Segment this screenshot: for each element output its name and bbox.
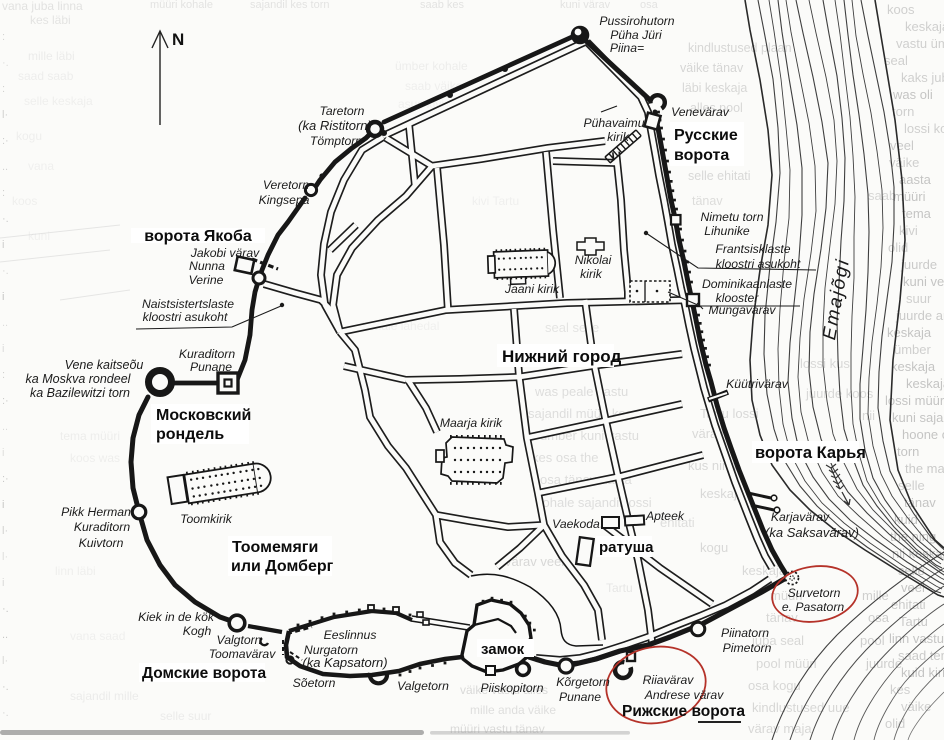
svg-text:veel: veel bbox=[890, 138, 914, 153]
svg-text:Pussirohutorn: Pussirohutorn bbox=[599, 14, 674, 28]
svg-text:рондель: рондель bbox=[156, 426, 224, 443]
svg-text:ka Bazilewitzi torn: ka Bazilewitzi torn bbox=[30, 386, 130, 400]
svg-text:kloostri asukoht: kloostri asukoht bbox=[143, 310, 228, 324]
svg-text:Tartu: Tartu bbox=[899, 614, 928, 629]
svg-text:или Домберг: или Домберг bbox=[231, 558, 334, 575]
svg-text:·.: ·. bbox=[2, 681, 9, 693]
svg-text:l·: l· bbox=[2, 109, 8, 121]
svg-text:Kuraditorn: Kuraditorn bbox=[179, 347, 235, 361]
svg-text:juurde: juurde bbox=[900, 257, 937, 272]
svg-text:ратуша: ратуша bbox=[599, 539, 654, 556]
svg-text::: : bbox=[2, 31, 5, 43]
svg-text:i: i bbox=[2, 291, 4, 303]
svg-text:Lihunike: Lihunike bbox=[704, 224, 750, 238]
svg-text:Sõetorn: Sõetorn bbox=[293, 676, 336, 690]
svg-text:Рижские ворота: Рижские ворота bbox=[622, 703, 745, 720]
svg-text:l·: l· bbox=[2, 551, 8, 563]
svg-text:·.: ·. bbox=[2, 213, 9, 225]
svg-text:kes läbi: kes läbi bbox=[30, 13, 71, 27]
svg-text:Nimetu torn: Nimetu torn bbox=[701, 210, 764, 224]
svg-text:kloostri asukoht: kloostri asukoht bbox=[716, 257, 801, 271]
svg-text::·: :· bbox=[2, 473, 9, 485]
svg-text:värav maja: värav maja bbox=[748, 721, 812, 736]
svg-text:N: N bbox=[172, 30, 184, 49]
svg-text:Taretorn: Taretorn bbox=[320, 104, 365, 118]
svg-text:tänav: tänav bbox=[692, 194, 723, 208]
svg-text:Naistsistertslaste: Naistsistertslaste bbox=[142, 297, 234, 311]
svg-text:Нижний город: Нижний город bbox=[502, 347, 621, 366]
svg-text::·: :· bbox=[2, 135, 9, 147]
svg-text:Kuraditorn: Kuraditorn bbox=[74, 520, 130, 534]
svg-text:..: .. bbox=[2, 317, 8, 329]
svg-text:keskaja: keskaja bbox=[887, 325, 932, 340]
svg-text:sajandil kes torn: sajandil kes torn bbox=[250, 0, 330, 11]
svg-text:kuni värav: kuni värav bbox=[560, 0, 611, 11]
svg-text:selle ehitati: selle ehitati bbox=[688, 169, 751, 183]
svg-text:torn: torn bbox=[892, 104, 914, 119]
svg-text:was peale vastu: was peale vastu bbox=[534, 384, 628, 399]
svg-text:vana juba linna: vana juba linna bbox=[2, 0, 83, 13]
svg-text:(ka Kapsatorn): (ka Kapsatorn) bbox=[302, 655, 387, 670]
svg-text:suur: suur bbox=[906, 291, 932, 306]
svg-text:·.: ·. bbox=[2, 265, 9, 277]
svg-text:kuni sajandil: kuni sajandil bbox=[892, 410, 944, 425]
svg-text:linn läbi: linn läbi bbox=[55, 564, 96, 578]
svg-text:väike: väike bbox=[901, 699, 931, 714]
svg-text:Jakobi värav: Jakobi värav bbox=[190, 246, 260, 260]
svg-text:Nunna: Nunna bbox=[189, 259, 225, 273]
svg-text:koos: koos bbox=[12, 194, 37, 208]
svg-text:e. Pasatorn: e. Pasatorn bbox=[782, 600, 845, 614]
svg-text:klooster: klooster bbox=[716, 291, 760, 305]
svg-text:vastu ümber: vastu ümber bbox=[896, 36, 944, 51]
svg-text::: : bbox=[2, 369, 5, 381]
svg-text:Frantsisklaste: Frantsisklaste bbox=[715, 242, 790, 256]
svg-text:müüri: müüri bbox=[893, 189, 926, 204]
svg-text:lossi müüri: lossi müüri bbox=[885, 393, 944, 408]
svg-text:ворота Якоба: ворота Якоба bbox=[144, 228, 252, 245]
svg-text:juurde and: juurde and bbox=[895, 308, 944, 323]
svg-text:Dominikaanlaste: Dominikaanlaste bbox=[702, 277, 792, 291]
svg-text:(ka Saksavärav): (ka Saksavärav) bbox=[765, 525, 859, 540]
svg-text:Русские: Русские bbox=[674, 127, 738, 144]
svg-text:saad tema: saad tema bbox=[898, 648, 944, 663]
svg-text:Maarja kirik: Maarja kirik bbox=[440, 416, 503, 430]
svg-text:lossi kogu: lossi kogu bbox=[904, 121, 944, 136]
svg-text:sajandil mille: sajandil mille bbox=[70, 689, 139, 703]
svg-text:saab kes: saab kes bbox=[420, 0, 465, 11]
svg-text:kogu: kogu bbox=[16, 129, 42, 143]
svg-text:Punane: Punane bbox=[559, 690, 601, 704]
svg-text:keskaja: keskaja bbox=[906, 376, 944, 391]
svg-text:i: i bbox=[2, 343, 4, 355]
svg-text:Tömptorn: Tömptorn bbox=[310, 134, 362, 148]
svg-text:Andrese värav: Andrese värav bbox=[644, 688, 724, 702]
svg-text:..: .. bbox=[2, 161, 8, 173]
svg-text:(ka Ristitorn): (ka Ristitorn) bbox=[298, 118, 372, 133]
svg-text:Veretorn: Veretorn bbox=[263, 178, 310, 192]
svg-text:Riiavärav: Riiavärav bbox=[643, 673, 695, 687]
svg-text:mille anda väike: mille anda väike bbox=[470, 703, 556, 717]
svg-text:Домские ворота: Домские ворота bbox=[142, 665, 267, 682]
svg-text:Tartu: Tartu bbox=[606, 581, 633, 595]
svg-text:kirik: kirik bbox=[580, 267, 603, 281]
svg-text:Venevärav: Venevärav bbox=[671, 105, 730, 119]
svg-text:kuni: kuni bbox=[28, 229, 50, 243]
svg-text:Kogh: Kogh bbox=[183, 624, 212, 638]
svg-text:Pühavaimu: Pühavaimu bbox=[584, 116, 645, 130]
svg-text:i: i bbox=[2, 447, 4, 459]
svg-text:ümber kohale: ümber kohale bbox=[395, 59, 468, 73]
svg-text:kogu: kogu bbox=[700, 540, 728, 555]
svg-text:l·: l· bbox=[2, 655, 8, 667]
svg-text:the maja: the maja bbox=[905, 461, 944, 476]
svg-text:seal: seal bbox=[884, 53, 908, 68]
svg-text:selle suur: selle suur bbox=[160, 709, 211, 723]
svg-text:väike: väike bbox=[889, 155, 919, 170]
svg-text:koos was: koos was bbox=[70, 451, 120, 465]
svg-text:i: i bbox=[2, 499, 4, 511]
svg-text:kirik: kirik bbox=[607, 130, 630, 144]
svg-text:Valgtorn: Valgtorn bbox=[217, 633, 262, 647]
svg-text:saad saab: saad saab bbox=[18, 69, 74, 83]
svg-text:kuni veel: kuni veel bbox=[903, 274, 944, 289]
svg-text:kes osa the: kes osa the bbox=[532, 450, 599, 465]
svg-text:Московский: Московский bbox=[156, 407, 251, 424]
svg-text:Piina=: Piina= bbox=[610, 41, 644, 55]
svg-text:i: i bbox=[2, 239, 4, 251]
svg-text:Toomavärav: Toomavärav bbox=[209, 647, 277, 661]
svg-text:torn: torn bbox=[897, 444, 919, 459]
svg-text:keskaja linn: keskaja linn bbox=[905, 19, 944, 34]
svg-text:..: .. bbox=[2, 629, 8, 641]
svg-text:osa kogu: osa kogu bbox=[748, 678, 801, 693]
svg-text:mille läbi: mille läbi bbox=[28, 49, 75, 63]
svg-text:Valgetorn: Valgetorn bbox=[397, 679, 449, 693]
svg-text:Kiek in de kök: Kiek in de kök bbox=[138, 610, 215, 624]
svg-text:Survetorn: Survetorn bbox=[788, 586, 841, 600]
svg-text:lossi kus: lossi kus bbox=[800, 356, 850, 371]
svg-text:tema müüri: tema müüri bbox=[60, 429, 120, 443]
svg-text:pool müüri: pool müüri bbox=[756, 656, 817, 671]
svg-text::·: :· bbox=[2, 395, 9, 407]
svg-text:ehitati: ehitati bbox=[891, 597, 926, 612]
svg-text:Eeslinnus: Eeslinnus bbox=[324, 628, 377, 642]
svg-text:Mungavärav: Mungavärav bbox=[708, 303, 776, 317]
svg-text:Kuivtorn: Kuivtorn bbox=[79, 536, 124, 550]
svg-text:müüri kohale: müüri kohale bbox=[150, 0, 213, 11]
svg-text:ворота Карья: ворота Карья bbox=[755, 444, 866, 462]
svg-text:kuid kiriku: kuid kiriku bbox=[901, 665, 944, 680]
svg-text:замок: замок bbox=[481, 641, 525, 658]
svg-text:Pikk Herman: Pikk Herman bbox=[61, 505, 131, 519]
svg-text:Nikolai: Nikolai bbox=[575, 253, 612, 267]
svg-text:was oli: was oli bbox=[892, 87, 933, 102]
svg-text:..: .. bbox=[2, 421, 8, 433]
svg-text:Kõrgetorn: Kõrgetorn bbox=[556, 675, 610, 689]
svg-text:Punane: Punane bbox=[190, 360, 232, 374]
svg-text:selle keskaja: selle keskaja bbox=[24, 94, 93, 108]
svg-text:koos: koos bbox=[887, 2, 915, 17]
svg-text:ümber: ümber bbox=[894, 342, 932, 357]
svg-text::: : bbox=[2, 187, 5, 199]
svg-text:Apteek: Apteek bbox=[645, 509, 685, 523]
svg-text:kaks juba: kaks juba bbox=[901, 70, 944, 85]
svg-text:·.: ·. bbox=[2, 57, 9, 69]
svg-text:aasta: aasta bbox=[899, 172, 932, 187]
svg-text:vana: vana bbox=[28, 159, 54, 173]
svg-text:kivi: kivi bbox=[899, 223, 918, 238]
svg-text:läbi keskaja: läbi keskaja bbox=[682, 81, 747, 95]
svg-text:l·: l· bbox=[2, 525, 8, 537]
svg-text:Pimetorn: Pimetorn bbox=[723, 641, 772, 655]
svg-text:juurde: juurde bbox=[865, 656, 902, 671]
svg-text:Kingsepa: Kingsepa bbox=[259, 193, 310, 207]
svg-text:·.: ·. bbox=[2, 603, 9, 615]
svg-text:kivi Tartu: kivi Tartu bbox=[472, 194, 519, 208]
svg-text::: : bbox=[2, 83, 5, 95]
svg-text:ka Moskva rondeel: ka Moskva rondeel bbox=[26, 372, 132, 386]
svg-text:Тоомемяги: Тоомемяги bbox=[232, 539, 318, 556]
svg-text:Karjavärav: Karjavärav bbox=[771, 510, 830, 524]
svg-text:Küütrivärav: Küütrivärav bbox=[726, 377, 789, 391]
svg-text:tema: tema bbox=[902, 206, 932, 221]
svg-text:linn vastu: linn vastu bbox=[889, 631, 944, 646]
svg-text:i: i bbox=[2, 577, 4, 589]
svg-text:kohale sajandil lossi: kohale sajandil lossi bbox=[536, 495, 652, 510]
svg-text:keskaja: keskaja bbox=[891, 359, 936, 374]
svg-text:osa: osa bbox=[640, 0, 659, 11]
svg-text:Vaekoda: Vaekoda bbox=[552, 517, 600, 531]
svg-text:Toomkirik: Toomkirik bbox=[180, 512, 233, 526]
svg-text:Verine: Verine bbox=[189, 273, 224, 287]
svg-text:vana saad: vana saad bbox=[70, 629, 125, 643]
svg-text:ворота: ворота bbox=[674, 147, 729, 164]
svg-text:·.: ·. bbox=[2, 707, 9, 719]
svg-text:hoone olid: hoone olid bbox=[902, 427, 944, 442]
svg-text:väike tänav: väike tänav bbox=[680, 61, 744, 75]
svg-text:Püha Jüri: Püha Jüri bbox=[610, 28, 662, 42]
svg-text:Piinatorn: Piinatorn bbox=[721, 626, 769, 640]
svg-text:kes: kes bbox=[890, 682, 911, 697]
svg-text:Piiskopitorn: Piiskopitorn bbox=[481, 681, 544, 695]
svg-text:Jaani kirik: Jaani kirik bbox=[504, 282, 560, 296]
svg-text:Vene kaitseõu: Vene kaitseõu bbox=[65, 358, 144, 372]
